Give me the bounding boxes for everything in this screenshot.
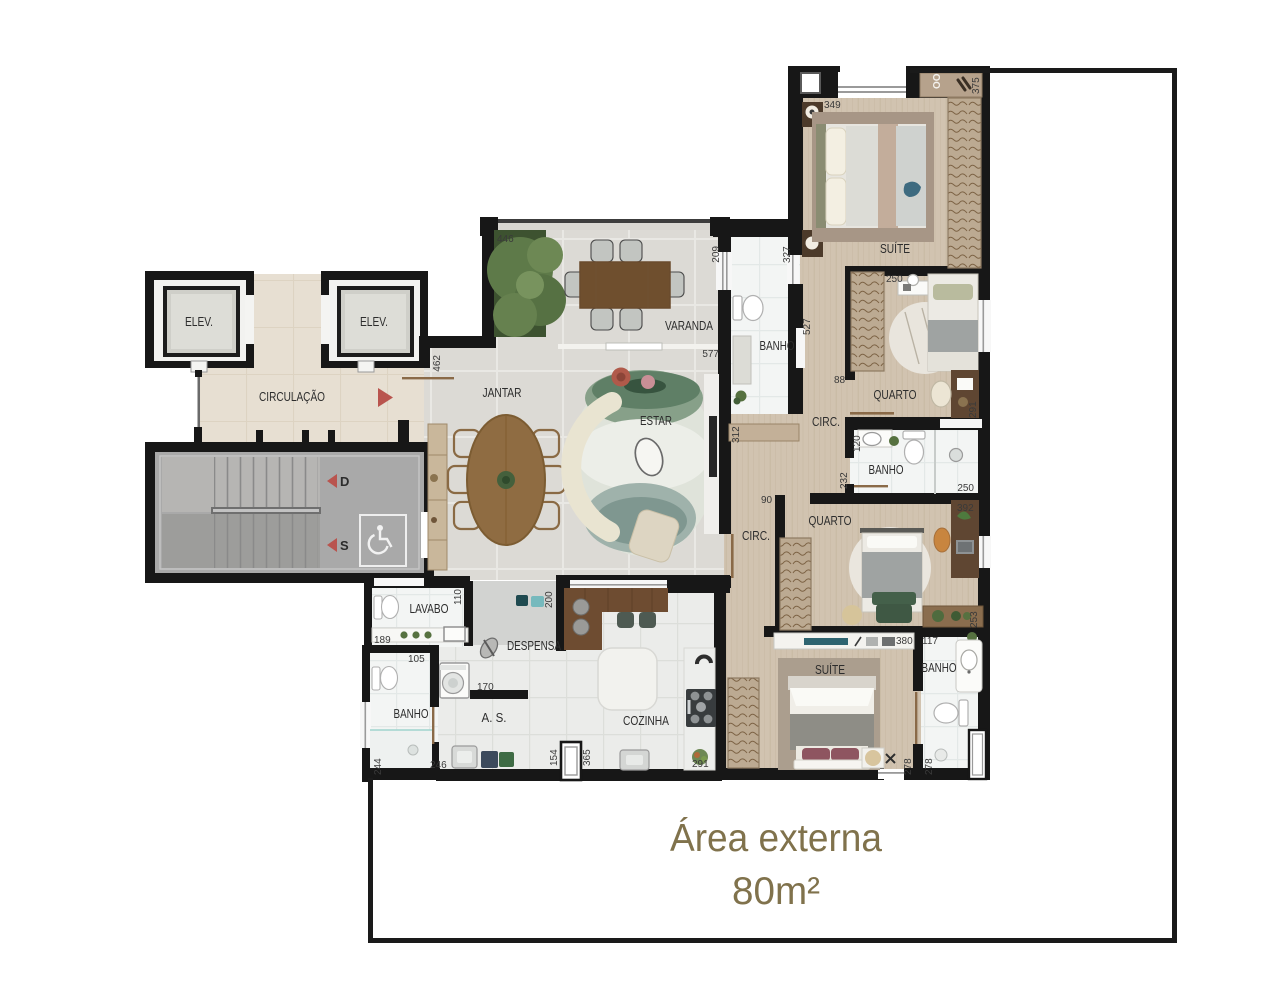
svg-text:VARANDA: VARANDA [665,319,714,333]
svg-text:527: 527 [802,318,813,335]
svg-text:A. S.: A. S. [482,711,507,725]
svg-text:462: 462 [432,355,443,372]
svg-text:QUARTO: QUARTO [809,514,852,528]
svg-text:170: 170 [477,682,494,693]
svg-text:S: S [340,538,349,553]
svg-text:250: 250 [957,483,974,494]
svg-text:CIRCULAÇÃO: CIRCULAÇÃO [259,390,325,404]
svg-text:BANHO: BANHO [922,661,957,675]
svg-text:232: 232 [839,472,850,489]
svg-text:380: 380 [896,636,913,647]
svg-text:577: 577 [702,349,719,360]
svg-text:105: 105 [408,654,425,665]
svg-text:200: 200 [544,591,555,608]
svg-text:QUARTO: QUARTO [874,388,917,402]
svg-text:349: 349 [824,100,841,111]
svg-text:291: 291 [968,401,979,418]
svg-text:88: 88 [834,375,846,386]
svg-text:189: 189 [374,635,391,646]
svg-text:LAVABO: LAVABO [410,602,449,616]
svg-text:246: 246 [430,760,447,771]
svg-text:110: 110 [453,589,464,605]
svg-text:278: 278 [903,758,914,775]
svg-text:ELEV.: ELEV. [185,315,213,329]
svg-text:250: 250 [886,274,903,285]
svg-text:120: 120 [852,435,863,452]
svg-text:209: 209 [711,246,722,263]
svg-text:278: 278 [924,758,935,775]
svg-text:392: 392 [957,503,974,514]
svg-text:BANHO: BANHO [760,339,795,353]
svg-text:ESTAR: ESTAR [640,414,672,428]
svg-text:OO: OO [932,73,943,89]
svg-text:JANTAR: JANTAR [483,386,522,400]
svg-text:375: 375 [971,77,982,94]
svg-text:CIRC.: CIRC. [812,415,840,429]
svg-text:D: D [340,474,349,489]
svg-text:154: 154 [549,749,560,766]
svg-text:446: 446 [497,234,514,245]
svg-text:253: 253 [969,611,980,628]
svg-text:90: 90 [761,495,773,506]
svg-text:COZINHA: COZINHA [623,714,670,728]
svg-text:CIRC.: CIRC. [742,529,770,543]
svg-text:DESPENSA: DESPENSA [507,639,562,653]
svg-text:244: 244 [373,758,384,775]
svg-text:ELEV.: ELEV. [360,315,388,329]
svg-text:117: 117 [922,636,938,647]
svg-text:312: 312 [731,426,742,443]
svg-text:291: 291 [692,759,709,770]
svg-text:Área externa: Área externa [670,817,882,860]
svg-text:80m²: 80m² [732,870,820,913]
svg-text:BANHO: BANHO [394,707,429,721]
svg-text:SUÍTE: SUÍTE [815,662,845,677]
svg-text:BANHO: BANHO [869,463,904,477]
svg-text:SUÍTE: SUÍTE [880,241,910,256]
svg-text:365: 365 [582,749,593,766]
svg-text:327: 327 [782,246,793,263]
